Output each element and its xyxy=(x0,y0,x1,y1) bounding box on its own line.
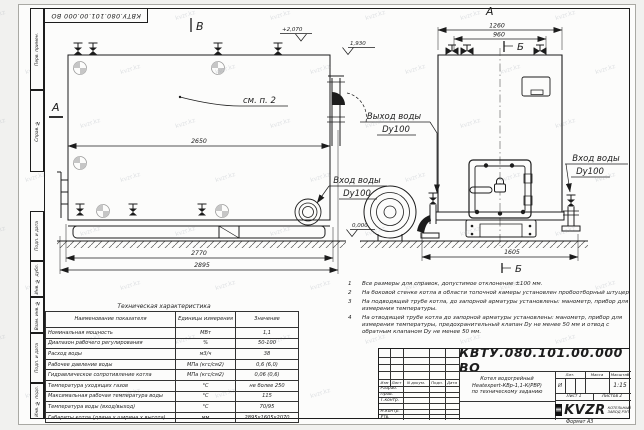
notes-list: 1Все размеры для справок, допустимое отк… xyxy=(348,281,632,338)
company-logo-cell: ≡ KVZR КОТЕЛЬНЫЙ ЗАВОД РЭП xyxy=(555,400,631,420)
sheets-total: Листов 2 xyxy=(593,393,631,400)
rev-col-izm: Изм xyxy=(379,379,390,386)
tech-cell: Диапазон рабочего регулирования xyxy=(46,338,176,349)
tech-cell: Гидравлическое сопротивление котла xyxy=(46,370,176,381)
elev-top-label: +2,070 xyxy=(282,27,303,33)
burner-fan xyxy=(364,186,439,241)
lit-header: Лит. xyxy=(555,371,585,378)
rev-col-data: Дата xyxy=(445,379,459,386)
note-item: 2На боковой стенке котла в области топоч… xyxy=(348,290,632,297)
tech-cell: 2895х1605х2070 xyxy=(236,412,299,423)
title-block: КВТУ.080.101.00.000 ВО Изм Лист N докум.… xyxy=(378,348,630,419)
section-b-bottom-label: Б xyxy=(515,264,522,275)
tech-table-title: Техническая характеристика xyxy=(45,303,283,310)
description-line: по техническому заданию xyxy=(472,389,543,395)
section-a-label: А xyxy=(51,101,60,114)
kvzr-logo-text: KVZR xyxy=(564,403,606,418)
sheet-number: Лист 1 xyxy=(555,393,593,400)
margin-box-inv-podl: Инв. № подл. xyxy=(30,383,44,419)
tech-row: Температура уходящих газов°Сне более 250 xyxy=(46,380,299,391)
tech-row: Рабочее давление водыМПа (кгс/см2)0,6 (6… xyxy=(46,359,299,370)
mass-header: Масса xyxy=(585,371,609,378)
note-number: 1 xyxy=(348,281,362,288)
tech-cell: Номинальная мощность xyxy=(46,328,176,339)
margin-label: Справ. № xyxy=(35,120,40,142)
margin-box-sprav-no: Справ. № xyxy=(30,90,44,172)
dim-1260-label: 1260 xyxy=(489,23,505,30)
tech-cell: Расход воды xyxy=(46,349,176,360)
ground-hatching xyxy=(57,241,588,248)
tech-row: Габариты котла (длина х ширина х высота)… xyxy=(46,412,299,423)
note-item: 4На отводящей трубе котла до запорной ар… xyxy=(348,315,632,337)
margin-box-podp-data-1: Подп. и дата xyxy=(30,211,44,261)
tech-row: Температура воды (вход/выход)°С70/95 xyxy=(46,402,299,413)
view-a-label: А xyxy=(485,5,494,18)
rev-col-ndokum: N докум. xyxy=(403,379,429,386)
tech-cell: °С xyxy=(176,391,236,402)
margin-label: Инв. № дубл. xyxy=(35,264,40,294)
company-name: КОТЕЛЬНЫЙ ЗАВОД РЭП xyxy=(608,406,631,415)
dim-1605-label: 1605 xyxy=(504,249,520,256)
drawing-sheet: kvzr.kzkvzr.kzkvzr.kzkvzr.kzkvzr.kzkvzr.… xyxy=(0,0,644,430)
section-b-top-label: Б xyxy=(517,42,524,53)
dim-2770-label: 2770 xyxy=(191,250,207,257)
tech-cell: 50-100 xyxy=(236,338,299,349)
margin-label: Инв. № подл. xyxy=(35,386,40,417)
tech-row: Диапазон рабочего регулирования%50-100 xyxy=(46,338,299,349)
water-in-left-label: Вход воды xyxy=(333,176,381,186)
tech-cell: мм xyxy=(176,412,236,423)
tech-col-header: Наименование показателя xyxy=(46,312,176,328)
margin-box-inv-dubl: Инв. № дубл. xyxy=(30,261,44,297)
tech-cell: МПа (кгс/см2) xyxy=(176,370,236,381)
tech-cell: МВт xyxy=(176,328,236,339)
note-item: 3На подводящей трубе котла, до запорной … xyxy=(348,299,632,314)
dim-960-label: 960 xyxy=(493,32,505,39)
format-label: Формат А3 xyxy=(566,420,593,425)
sign-utv: Утв. xyxy=(379,414,405,420)
elev-pipe-label: 1,930 xyxy=(350,41,366,47)
tech-cell: Температура воды (вход/выход) xyxy=(46,402,176,413)
water-in-left-dn: Dy100 xyxy=(343,189,371,199)
tech-cell: °С xyxy=(176,402,236,413)
tech-cell: 0,06 (0,6) xyxy=(236,370,299,381)
note-number: 4 xyxy=(348,315,362,337)
tech-cell: 70/95 xyxy=(236,402,299,413)
tech-row: Расход водым3/ч38 xyxy=(46,349,299,360)
water-in-right-label: Вход воды xyxy=(572,154,620,164)
margin-label: Взам. инв. № xyxy=(35,300,40,330)
front-view xyxy=(436,45,580,246)
water-out-label: Выход воды xyxy=(367,112,421,122)
margin-label: Подп. и дата xyxy=(35,343,40,373)
see-note-label: см. п. 2 xyxy=(243,96,276,106)
tech-row: Номинальная мощностьМВт1,1 xyxy=(46,328,299,339)
tech-cell: °С xyxy=(176,380,236,391)
margin-box-perv-primen: Перв. примен. xyxy=(30,8,44,90)
lit-value: И xyxy=(555,378,565,393)
view-b-label: В xyxy=(196,20,204,33)
scale-value: 1:15 xyxy=(609,378,631,393)
note-number: 3 xyxy=(348,299,362,314)
tech-cell: 115 xyxy=(236,391,299,402)
water-in-right-dn: Dy100 xyxy=(576,167,604,177)
note-text: На отводящей трубе котла до запорной арм… xyxy=(362,315,632,337)
tech-cell: 1,1 xyxy=(236,328,299,339)
tech-cell: Габариты котла (длина х ширина х высота) xyxy=(46,412,176,423)
tech-cell: не более 250 xyxy=(236,380,299,391)
margin-label: Перв. примен. xyxy=(35,33,40,66)
tech-col-header: Значение xyxy=(236,312,299,328)
tech-col-header: Единицы измерения xyxy=(176,312,236,328)
side-view xyxy=(57,43,366,238)
rev-col-podp: Подп. xyxy=(429,379,445,386)
top-stamp-text: КВТУ.080.101.00.000 ВО xyxy=(51,12,141,20)
water-out-dn: Dy100 xyxy=(382,125,410,135)
scale-header: Масштаб xyxy=(609,371,631,378)
tech-row: Гидравлическое сопротивление котлаМПа (к… xyxy=(46,370,299,381)
company-name-line: ЗАВОД РЭП xyxy=(608,410,629,414)
note-text: На подводящей трубе котла, до запорной а… xyxy=(362,299,632,314)
dim-2650-label: 2650 xyxy=(191,138,207,145)
tech-characteristics: Техническая характеристика Наименование … xyxy=(45,303,283,423)
tech-table: Наименование показателяЕдиницы измерения… xyxy=(45,311,299,423)
tech-cell: Максимальная рабочая температура воды xyxy=(46,391,176,402)
note-text: На боковой стенке котла в области топочн… xyxy=(362,290,632,297)
item-description: Котел водогрейный Heatexpert-КВр-1,1-К(Р… xyxy=(459,371,555,401)
tech-cell: м3/ч xyxy=(176,349,236,360)
tech-cell: Температура уходящих газов xyxy=(46,380,176,391)
tech-row: Максимальная рабочая температура воды°С1… xyxy=(46,391,299,402)
tech-cell: 0,6 (6,0) xyxy=(236,359,299,370)
dim-2895-label: 2895 xyxy=(194,262,210,269)
top-stamp: КВТУ.080.101.00.000 ВО xyxy=(44,8,148,23)
elev-zero-label: 0,000 xyxy=(352,223,368,229)
margin-label: Подп. и дата xyxy=(35,221,40,251)
kvzr-logo-mark-icon: ≡ xyxy=(555,404,562,416)
note-number: 2 xyxy=(348,290,362,297)
tech-cell: % xyxy=(176,338,236,349)
tech-cell: МПа (кгс/см2) xyxy=(176,359,236,370)
doc-number: КВТУ.080.101.00.000 ВО xyxy=(459,349,631,371)
margin-box-podp-data-2: Подп. и дата xyxy=(30,333,44,383)
rev-col-list: Лист xyxy=(390,379,403,386)
tech-cell: 38 xyxy=(236,349,299,360)
note-item: 1Все размеры для справок, допустимое отк… xyxy=(348,281,632,288)
note-text: Все размеры для справок, допустимое откл… xyxy=(362,281,632,288)
tech-cell: Рабочее давление воды xyxy=(46,359,176,370)
margin-box-vzam-inv: Взам. инв. № xyxy=(30,297,44,333)
